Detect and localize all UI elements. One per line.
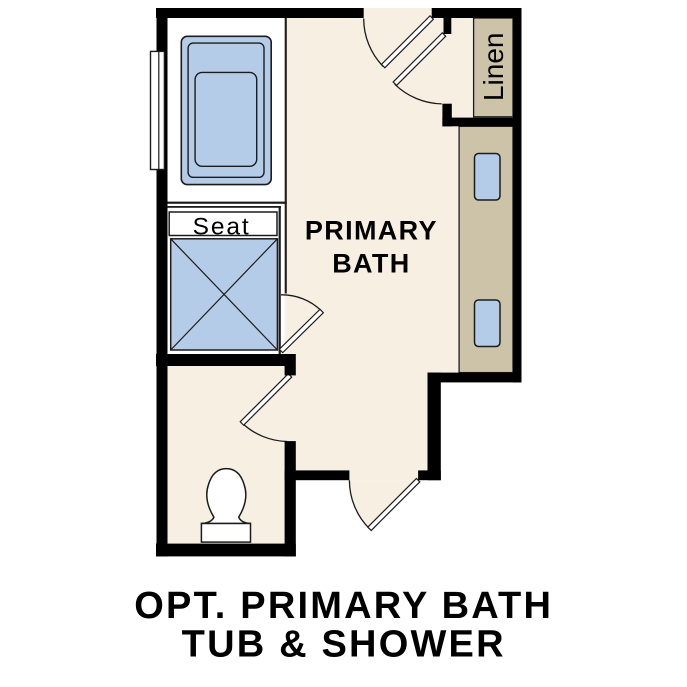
- svg-text:OPT. PRIMARY BATH: OPT. PRIMARY BATH: [134, 585, 553, 627]
- svg-text:Linen: Linen: [478, 33, 509, 102]
- svg-text:PRIMARY: PRIMARY: [305, 216, 438, 246]
- svg-text:BATH: BATH: [332, 249, 410, 279]
- svg-text:TUB & SHOWER: TUB & SHOWER: [182, 624, 506, 666]
- svg-text:Seat: Seat: [193, 213, 251, 240]
